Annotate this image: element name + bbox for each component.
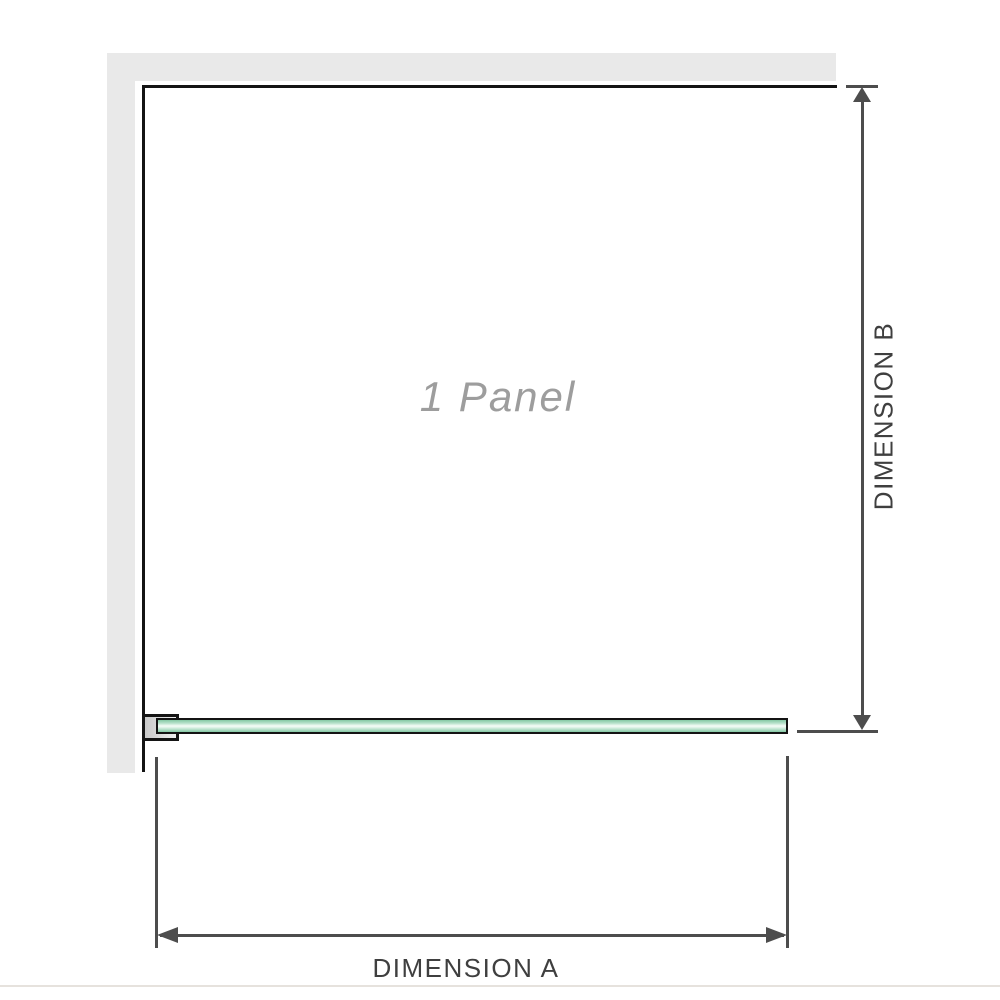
panel-count-label: 1 Panel bbox=[420, 373, 576, 421]
dimension-b-label: DIMENSION B bbox=[869, 322, 900, 510]
dimension-b-arrow-down-icon bbox=[853, 715, 871, 730]
glass-panel-bar bbox=[156, 718, 788, 734]
image-bottom-border-line bbox=[0, 985, 1000, 987]
wall-inner-edge-top-line bbox=[142, 85, 837, 88]
dimension-b-arrow-up-icon bbox=[853, 87, 871, 102]
dimension-a-line bbox=[160, 934, 784, 937]
dimension-b-line bbox=[861, 99, 864, 719]
dimension-a-arrow-right-icon bbox=[766, 927, 787, 943]
dimension-a-arrow-left-icon bbox=[157, 927, 178, 943]
wall-inner-edge-left-line bbox=[142, 85, 145, 772]
dimension-a-extension-left-line bbox=[155, 757, 158, 948]
shower-panel-dimension-diagram: 1 Panel DIMENSION B DIMENSION A bbox=[0, 0, 1000, 1000]
dimension-a-extension-right-line bbox=[786, 756, 789, 948]
dimension-a-label: DIMENSION A bbox=[373, 953, 560, 984]
dimension-b-extension-bottom-tick bbox=[797, 730, 878, 733]
wall-top-band bbox=[107, 53, 836, 81]
wall-left-band bbox=[107, 53, 135, 773]
